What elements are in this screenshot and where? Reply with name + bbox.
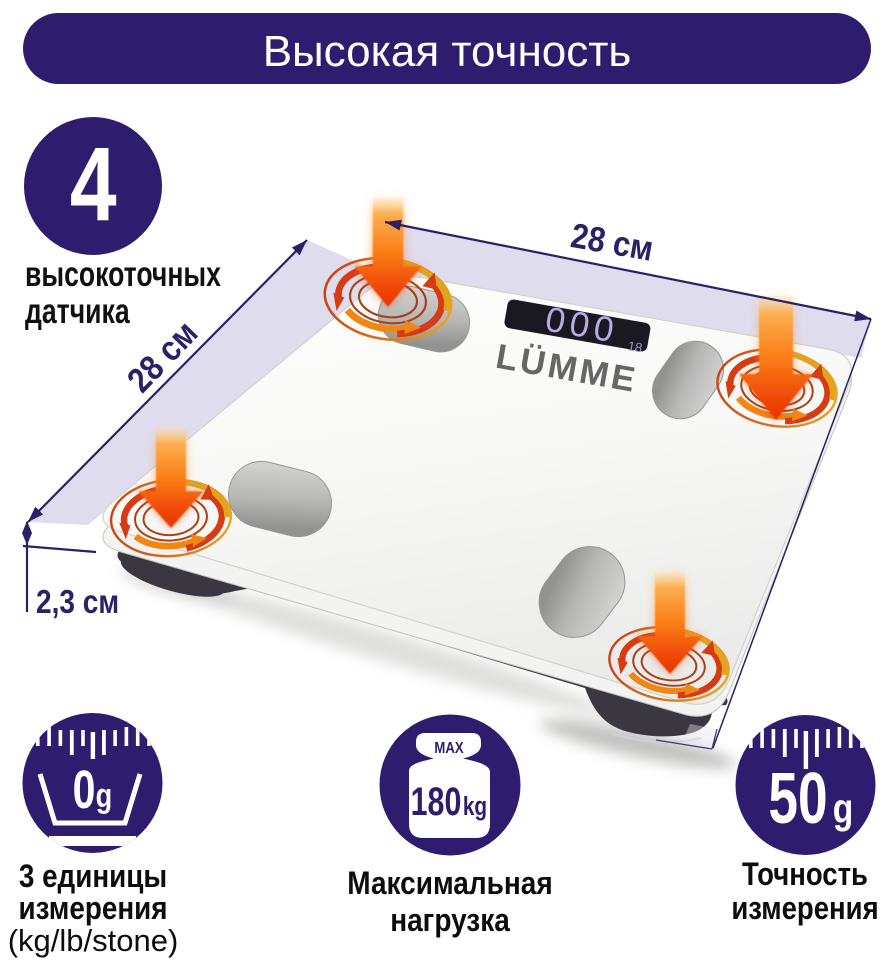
svg-text:18: 18: [627, 338, 644, 355]
svg-text:g: g: [96, 776, 113, 815]
svg-text:MAX: MAX: [434, 740, 463, 757]
svg-text:kg: kg: [463, 792, 487, 821]
svg-text:2,3 см: 2,3 см: [36, 584, 119, 621]
svg-text:180: 180: [411, 779, 462, 824]
svg-text:0: 0: [73, 761, 96, 821]
svg-text:50: 50: [768, 759, 827, 839]
svg-text:g: g: [833, 787, 854, 833]
